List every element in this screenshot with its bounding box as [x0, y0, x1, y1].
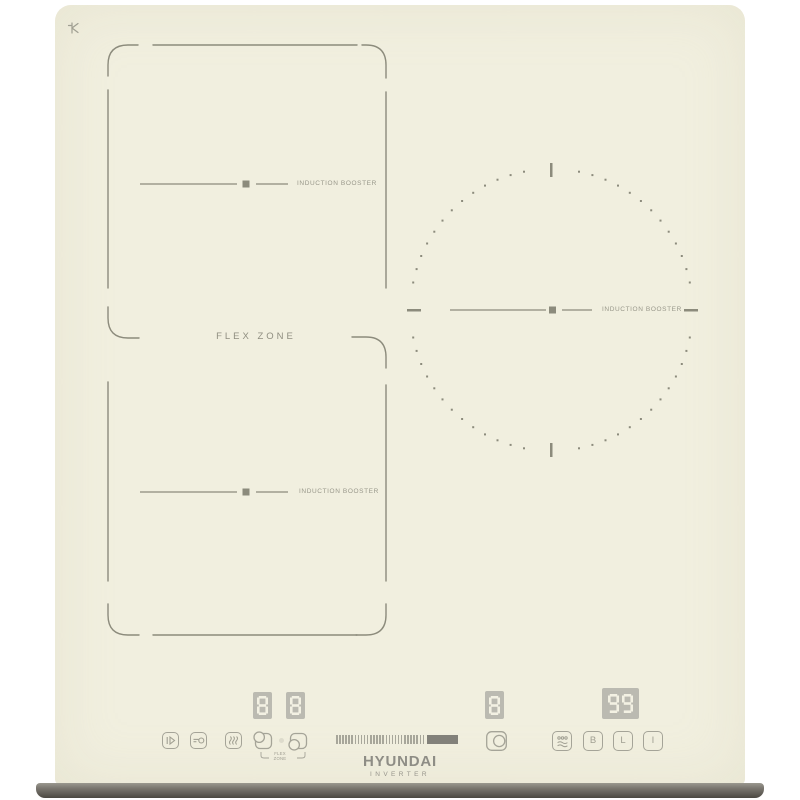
display-flex-upper	[253, 692, 272, 719]
simmer-icon	[554, 733, 571, 750]
flex-zone-upper-outline	[108, 45, 386, 338]
right-zone-booster-label: INDUCTION BOOSTER	[602, 306, 682, 313]
flex-zone-upper-icon	[251, 729, 276, 753]
booster-label: B	[590, 736, 596, 746]
flex-selector-caption: FLEX ZONE	[271, 752, 289, 761]
slider-fill-block	[427, 735, 458, 744]
surface-brand-mark-icon	[69, 23, 79, 33]
slider-ticks	[336, 735, 426, 744]
brand-logo: HYUNDAI	[300, 753, 500, 770]
key-lock-icon	[191, 733, 206, 748]
product-photo: INDUCTION BOOSTER INDUCTION BOOSTER INDU…	[0, 0, 800, 800]
child-lock-button[interactable]	[190, 732, 207, 749]
lock-label: L	[620, 736, 625, 746]
booster-button[interactable]: B	[583, 731, 603, 751]
simmer-button[interactable]	[552, 731, 572, 751]
keep-warm-button[interactable]	[225, 732, 242, 749]
power-button[interactable]: I	[643, 731, 663, 751]
flex-zone-label: FLEX ZONE	[210, 331, 302, 342]
zone-center-marks	[140, 184, 592, 492]
brand-subtitle: INVERTER	[300, 771, 500, 778]
flex-zone-lower-outline	[108, 337, 386, 635]
power-label: I	[652, 736, 655, 746]
flex-zone-lower-icon	[286, 729, 311, 753]
lower-zone-booster-label: INDUCTION BOOSTER	[299, 488, 379, 495]
keep-warm-icon	[226, 733, 241, 748]
zone-markings	[0, 0, 800, 800]
display-flex-lower	[286, 692, 305, 719]
display-right-zone	[485, 691, 504, 719]
lock-button[interactable]: L	[613, 731, 633, 751]
front-edge-strip	[36, 783, 764, 798]
flex-selector-dot	[279, 738, 284, 743]
pause-button[interactable]	[162, 732, 179, 749]
upper-zone-booster-label: INDUCTION BOOSTER	[297, 180, 377, 187]
display-timer	[602, 688, 639, 719]
power-slider[interactable]	[336, 735, 458, 744]
zone-select-icon	[486, 731, 507, 751]
pause-icon	[163, 733, 178, 748]
